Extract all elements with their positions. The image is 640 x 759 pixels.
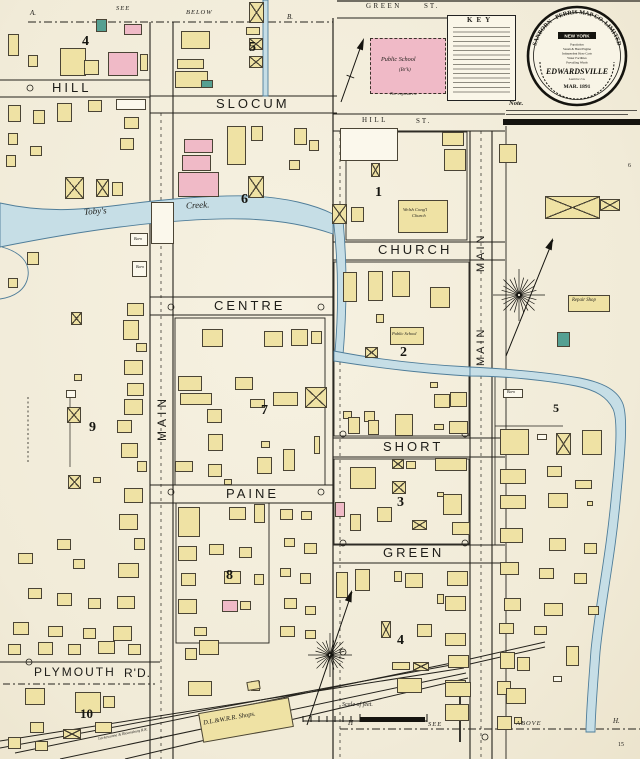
map-label: KEY [467, 17, 494, 24]
street-name-label: MAIN [476, 327, 487, 367]
block-number: 5 [553, 402, 559, 414]
map-label: Lackawanna & Bloomsburg R.R. [98, 728, 148, 741]
map-label: 15 [618, 742, 624, 748]
street-name-label: CHURCH [378, 243, 452, 256]
street-name-label: R'D. [124, 667, 151, 679]
block-number: 1 [375, 186, 382, 200]
sanborn-map-canvas: SANBORN - PERRIS MAP CO. LIMITED NEW YOR… [0, 0, 640, 759]
block-number: 2 [400, 346, 407, 360]
block-number: 9 [89, 421, 96, 435]
map-label: 6 [628, 163, 631, 169]
street-name-label: SLOCUM [216, 97, 290, 110]
map-label: Note. [509, 101, 523, 108]
map-label: Public School [381, 57, 416, 63]
map-label: Church [412, 214, 426, 219]
map-label: B. [287, 14, 293, 21]
block-number: 7 [261, 404, 268, 418]
map-label: Scale of feet. [342, 702, 373, 708]
map-label: H [348, 720, 353, 727]
map-label: Barn [507, 390, 515, 394]
map-label: Welsh Cong'l [403, 208, 427, 213]
street-name-label: PLYMOUTH [34, 666, 116, 678]
block-number: 5 [249, 41, 256, 55]
block-number: 4 [82, 35, 89, 49]
street-name-label: CENTRE [214, 299, 285, 312]
map-label: ST. [424, 3, 439, 10]
map-label: Creek. [186, 200, 210, 210]
block-number: 3 [397, 496, 404, 510]
street-name-label: MAIN [476, 233, 487, 273]
labels-layer: HILLSLOCUMCENTRECHURCHSHORTPAINEGREENPLY… [0, 0, 640, 759]
map-label: SEE [116, 6, 130, 13]
map-label: H. [613, 718, 620, 725]
map-label: Toby's [84, 206, 107, 217]
map-label: No. exposures. [390, 92, 417, 97]
block-number: 8 [226, 569, 233, 583]
street-name-label: HILL [52, 81, 91, 94]
map-label: A. [30, 10, 36, 17]
map-label: Barn [136, 265, 144, 269]
map-label: HILL [362, 117, 388, 124]
map-label: SEE [428, 722, 442, 729]
map-label: ABOVE [516, 721, 542, 728]
street-name-label: GREEN [383, 546, 444, 559]
map-label: Repair Shop [572, 299, 596, 304]
block-number: 6 [241, 193, 248, 207]
block-number: 10 [80, 707, 93, 720]
map-label: BELOW [186, 10, 213, 17]
map-label: Barn [134, 237, 142, 241]
street-name-label: SHORT [383, 440, 443, 453]
map-label: D.L.&W.R.R. Shops. [203, 711, 256, 727]
map-label: ST. [416, 118, 431, 125]
map-label: GREEN [366, 3, 402, 10]
map-label: (Br'k) [399, 68, 411, 73]
street-name-label: MAIN [156, 395, 168, 441]
map-label: Public School [392, 332, 417, 336]
street-name-label: PAINE [226, 487, 279, 500]
block-number: 4 [397, 634, 404, 648]
